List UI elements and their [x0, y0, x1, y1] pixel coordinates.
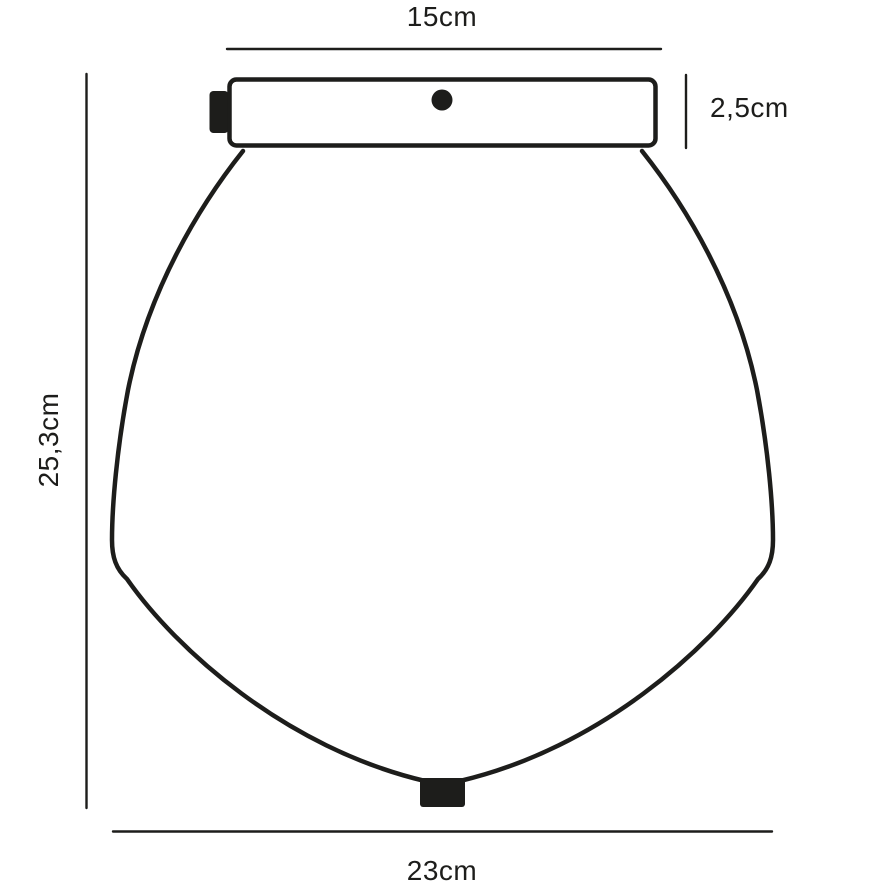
total-height-dimension-label: 25,3cm: [33, 393, 65, 488]
canopy-screw-dot: [432, 90, 453, 111]
shade-width-dimension-label: 23cm: [407, 855, 477, 886]
side-fitting-block: [210, 91, 229, 133]
ceiling-canopy: [230, 80, 656, 146]
canopy-height-dimension-label: 2,5cm: [710, 92, 789, 124]
top-width-dimension-label: 15cm: [407, 1, 477, 33]
bottom-finial-block: [420, 778, 465, 807]
lamp-shade-outline: [112, 151, 773, 781]
lamp-line-drawing: [0, 0, 886, 886]
dimension-drawing-canvas: 15cm 2,5cm 25,3cm 23cm: [0, 0, 886, 886]
